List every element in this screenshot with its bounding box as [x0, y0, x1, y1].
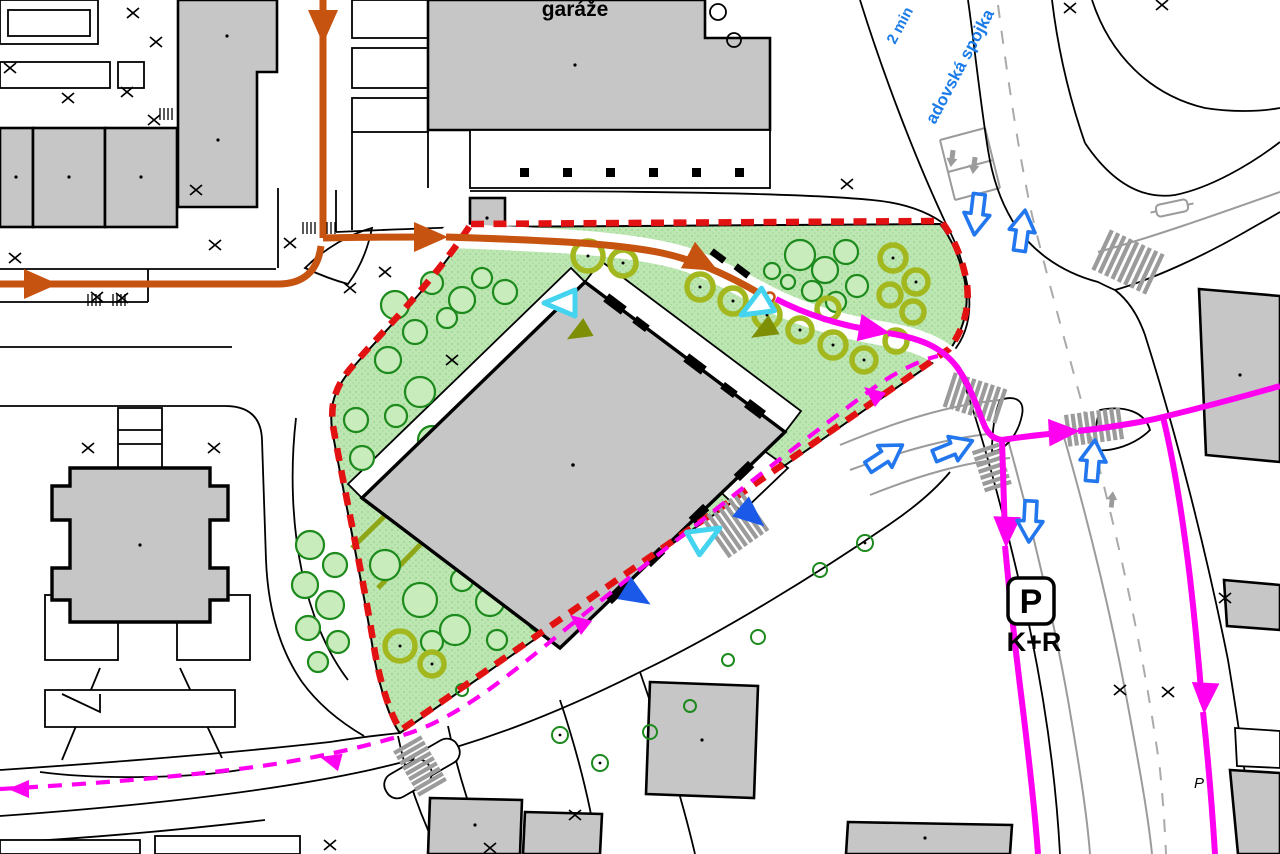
site-plan-map: garáže adovská spojka 2 min P K+R P [0, 0, 1280, 854]
route-arrow-icon [414, 222, 448, 252]
traffic-arrow-icon [861, 434, 910, 478]
route-arrow-icon [1190, 682, 1219, 715]
kr-label: K+R [1007, 627, 1062, 657]
lane-arrow-icon [967, 156, 980, 175]
road-name-label: adovská spojka [922, 6, 998, 127]
route-arrow-icon [308, 10, 338, 44]
car-icon [1149, 198, 1195, 219]
route-arrow-icon [8, 780, 29, 798]
walk-time-label: 2 min [884, 4, 917, 47]
traffic-arrow-icon [1016, 500, 1044, 542]
traffic-arrow-icon [930, 429, 978, 468]
parking-letter: P [1020, 583, 1043, 621]
kiss-and-ride-sign: P K+R [1007, 578, 1062, 657]
plan-canvas: garáže adovská spojka 2 min P K+R P [0, 0, 1280, 854]
traffic-arrow-icon [961, 193, 992, 237]
parking-spot-label: P [1194, 775, 1204, 792]
garage-label: garáže [542, 0, 609, 21]
lane-arrow-icon [1106, 491, 1118, 508]
route-arrow-icon [24, 269, 58, 299]
